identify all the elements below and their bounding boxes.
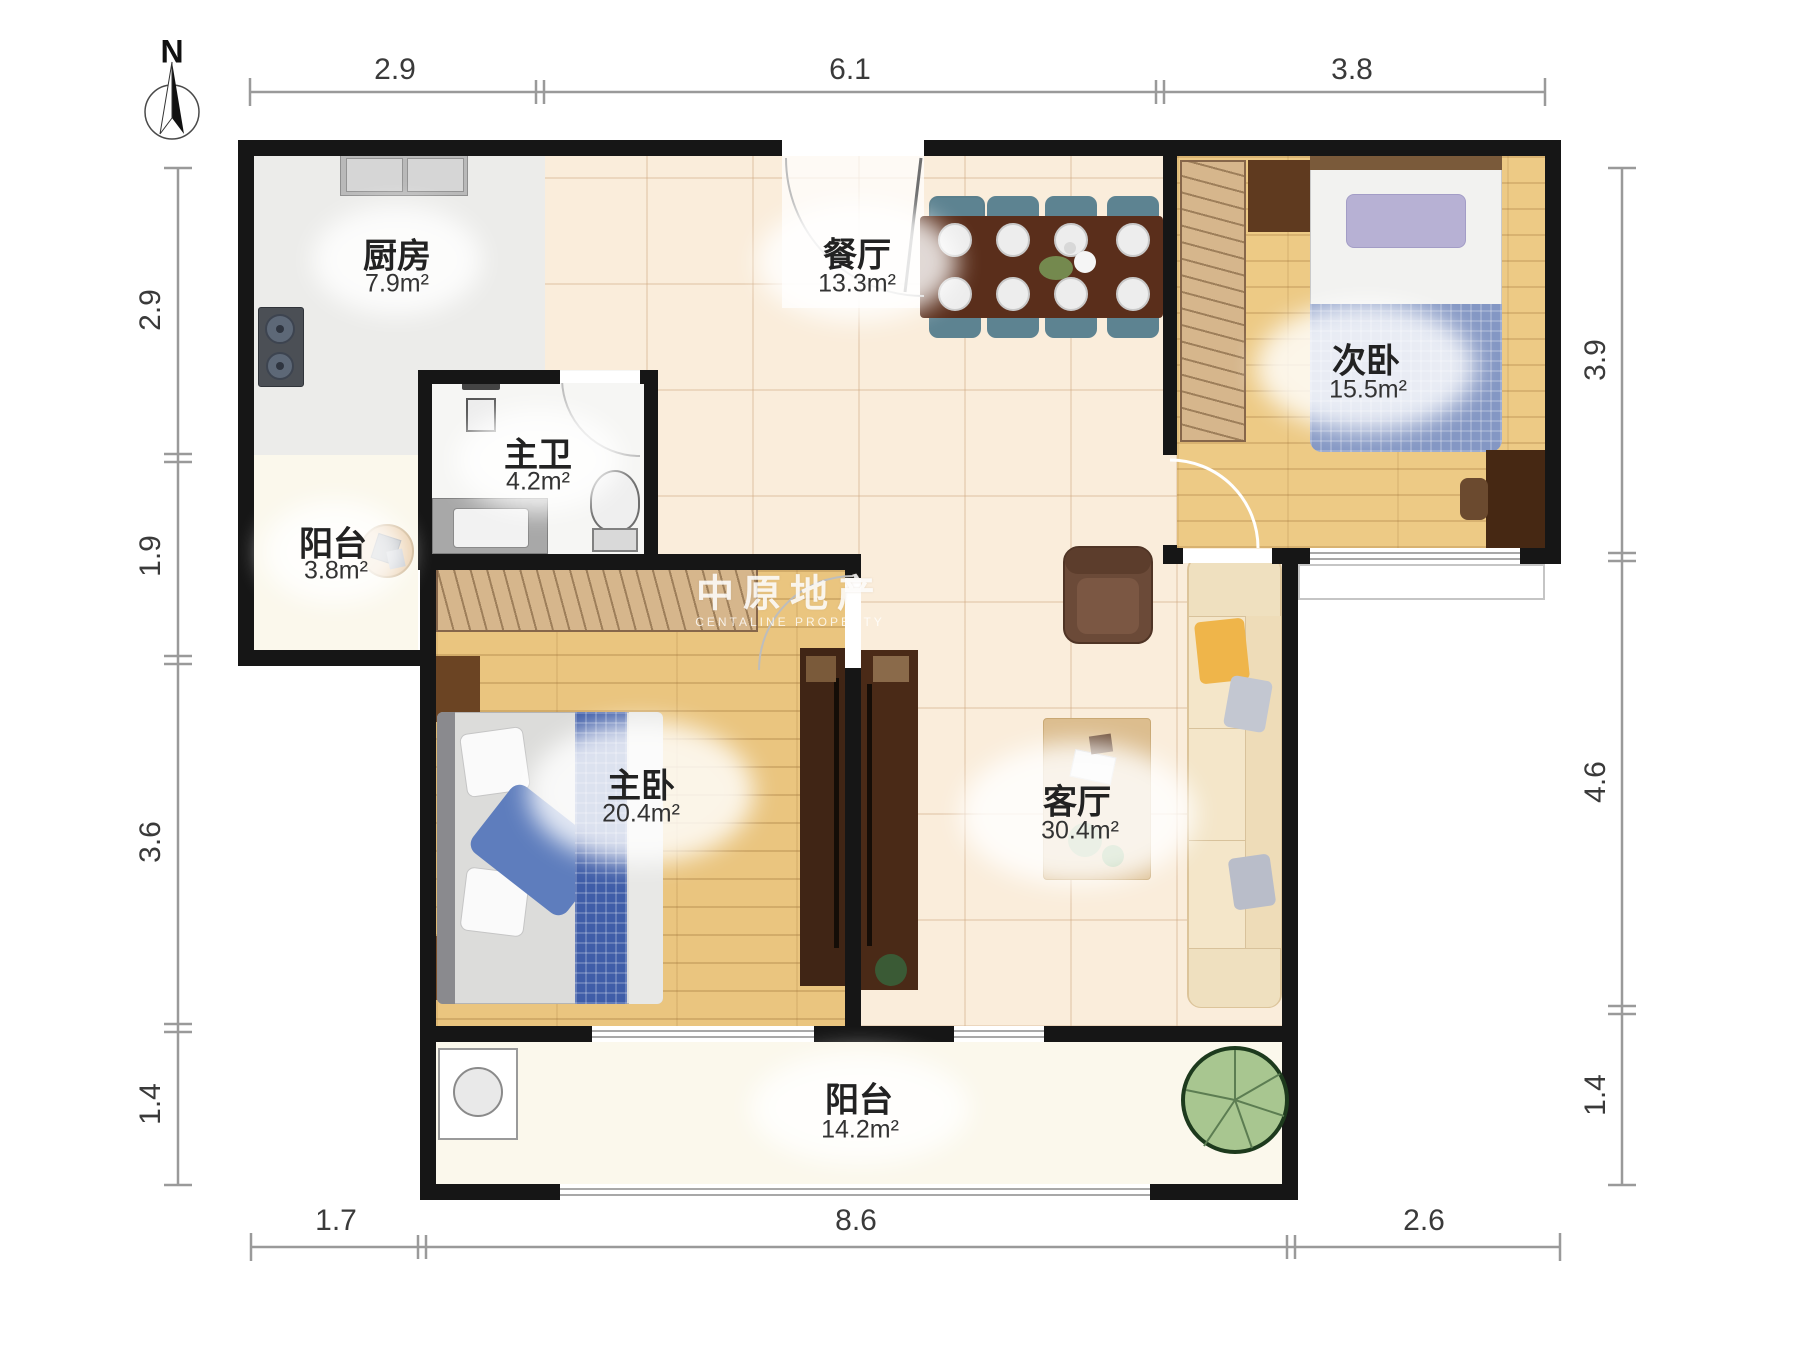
dim-bottom-2: 8.6 (835, 1204, 877, 1238)
room-area-second-bedroom: 15.5m² (1329, 376, 1407, 405)
floorplan-canvas: 厨房 7.9m² 餐厅 13.3m² 次卧 15.5m² 主卫 4.2m² 阳台… (0, 0, 1804, 1353)
bathroom-door-opening (560, 371, 640, 383)
stove-burners (266, 315, 294, 379)
dim-right-1: 3.9 (1579, 339, 1613, 381)
room-label-balcony-large: 阳台 (825, 1073, 893, 1122)
dim-left-4: 1.4 (134, 1083, 168, 1125)
watermark-logo: 中原地产 (696, 563, 884, 618)
dim-right-3: 1.4 (1579, 1074, 1613, 1116)
north-compass-icon (145, 62, 199, 139)
dim-left-3: 3.6 (134, 821, 168, 863)
plant-icon (1183, 1048, 1287, 1152)
dim-top-3: 3.8 (1331, 53, 1373, 87)
dim-bottom-1: 1.7 (315, 1204, 357, 1238)
room-area-kitchen: 7.9m² (365, 270, 429, 299)
second-bedroom-door-opening (1183, 549, 1272, 563)
room-area-living: 30.4m² (1041, 817, 1119, 846)
dim-left-1: 2.9 (134, 289, 168, 331)
second-bedroom-door-arc (1170, 460, 1258, 548)
dim-bottom-3: 2.6 (1403, 1204, 1445, 1238)
table-centerpiece (1039, 242, 1096, 280)
room-area-dining: 13.3m² (818, 270, 896, 299)
dim-top-2: 6.1 (829, 53, 871, 87)
room-area-balcony-large: 14.2m² (821, 1116, 899, 1145)
room-area-balcony-small: 3.8m² (304, 557, 368, 586)
compass-north-label: N (160, 34, 183, 71)
room-area-master-bath: 4.2m² (506, 468, 570, 497)
room-area-master-bedroom: 20.4m² (602, 800, 680, 829)
dim-top-1: 2.9 (374, 53, 416, 87)
dim-left-2: 1.9 (134, 535, 168, 577)
dim-right-2: 4.6 (1579, 761, 1613, 803)
watermark-subtitle: CENTALINE PROPERTY (695, 615, 885, 629)
